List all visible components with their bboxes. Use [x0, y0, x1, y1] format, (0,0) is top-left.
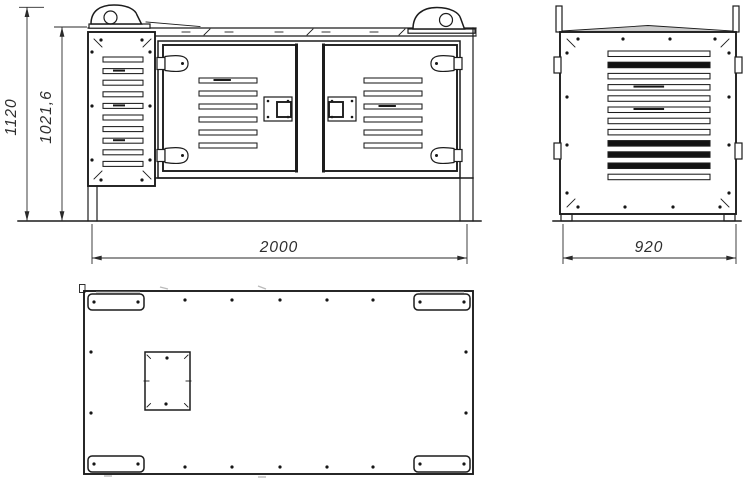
bolt-hole	[140, 38, 143, 41]
louver-slat	[199, 143, 257, 148]
bolt-hole	[230, 298, 233, 301]
bolt-hole	[89, 350, 92, 353]
louver-shadow	[634, 86, 665, 88]
bolt-hole	[576, 37, 579, 40]
bolt-hole	[727, 95, 730, 98]
louver-slat	[103, 115, 143, 120]
door-latch	[264, 97, 292, 121]
bolt-hole	[464, 350, 467, 353]
louver-shadow	[113, 139, 125, 141]
front-view: 1120 1021,6 2000	[3, 5, 481, 264]
bolt-hole	[325, 465, 328, 468]
louver-slat	[364, 91, 422, 96]
bolt-hole	[462, 300, 465, 303]
bolt-hole	[727, 51, 730, 54]
hinge	[157, 56, 188, 72]
bolt-hole	[565, 51, 568, 54]
cable-cutout	[144, 352, 191, 410]
edge-ticks	[104, 286, 266, 477]
dim-label-depth: 920	[635, 239, 664, 256]
bolt-hole	[278, 298, 281, 301]
bolt-hole	[418, 300, 421, 303]
bolt-hole	[92, 462, 95, 465]
bolt-hole	[165, 356, 168, 359]
hinge	[157, 148, 188, 164]
mounting-plate	[88, 294, 144, 310]
bolt-hole	[565, 143, 568, 146]
bolt-hole	[164, 402, 167, 405]
bolt-hole	[371, 298, 374, 301]
door-left-louvers	[199, 78, 257, 148]
door-latch	[328, 97, 356, 121]
bolt-hole	[727, 191, 730, 194]
bolt-hole	[148, 50, 151, 53]
roof-profile	[556, 6, 739, 33]
bolt-hole	[148, 104, 151, 107]
dim-label-length: 2000	[259, 239, 298, 256]
bolt-hole	[576, 205, 579, 208]
dimension-enclosure-height: 1021,6	[38, 27, 87, 221]
bolt-hole	[90, 50, 93, 53]
lifting-lug-left	[89, 5, 150, 28]
bolt-hole	[713, 37, 716, 40]
bolt-hole	[136, 300, 139, 303]
enclosure-body	[155, 28, 473, 221]
bolt-hole	[99, 38, 102, 41]
side-base	[553, 214, 741, 221]
roof-end-cap	[733, 6, 739, 32]
bolt-hole	[140, 178, 143, 181]
bottom-bolts	[89, 298, 467, 468]
louver-slat	[103, 127, 143, 132]
bottom-view	[80, 285, 474, 478]
bolt-hole	[371, 465, 374, 468]
bolt-hole	[278, 465, 281, 468]
dimension-depth: 920	[563, 224, 736, 264]
louver-slat	[103, 161, 143, 166]
louver-shadow	[379, 105, 396, 107]
bolt-hole	[92, 300, 95, 303]
louver-slat	[364, 78, 422, 83]
roof-end-cap	[556, 6, 562, 32]
base-outline	[84, 291, 473, 474]
louver-slat	[608, 141, 710, 147]
bolt-hole	[464, 411, 467, 414]
drawing-sheet: 1120 1021,6 2000	[0, 0, 744, 484]
lifting-lug-right	[408, 8, 475, 34]
side-view: 920	[553, 6, 742, 264]
base-legs	[18, 186, 481, 221]
bolt-hole	[565, 95, 568, 98]
bolt-hole	[668, 37, 671, 40]
louver-slat	[608, 51, 710, 57]
louver-slat	[103, 80, 143, 85]
louver-shadow	[113, 104, 125, 106]
louver-slat	[608, 73, 710, 79]
louver-slat	[199, 117, 257, 122]
louver-slat	[199, 91, 257, 96]
roof-ticks	[182, 29, 425, 35]
bolt-hole	[183, 465, 186, 468]
louver-slat	[608, 174, 710, 180]
bolt-hole	[418, 462, 421, 465]
louver-slat	[103, 92, 143, 97]
louver-slat	[608, 118, 710, 124]
louver-slat	[103, 57, 143, 62]
bolt-hole	[727, 143, 730, 146]
door-right-louvers	[364, 78, 422, 148]
bolt-hole	[462, 462, 465, 465]
louver-slat	[364, 117, 422, 122]
bolt-hole	[621, 37, 624, 40]
louver-slat	[608, 163, 710, 169]
louver-shadow	[214, 79, 231, 81]
bolt-hole	[136, 462, 139, 465]
bolt-hole	[671, 205, 674, 208]
louver-slat	[364, 130, 422, 135]
mounting-plate	[88, 456, 144, 472]
bolt-hole	[565, 191, 568, 194]
mounting-plate	[414, 294, 470, 310]
louver-slat	[364, 143, 422, 148]
bolt-hole	[90, 104, 93, 107]
louver-slat	[199, 130, 257, 135]
bolt-hole	[718, 205, 721, 208]
bolt-hole	[183, 298, 186, 301]
technical-drawing: 1120 1021,6 2000	[0, 0, 744, 484]
louver-slat	[103, 150, 143, 155]
bolt-hole	[148, 158, 151, 161]
louver-slat	[608, 129, 710, 135]
dim-label-overall-height: 1120	[3, 98, 20, 135]
louver-slat	[608, 152, 710, 158]
louver-slat	[199, 104, 257, 109]
dim-label-enclosure-height: 1021,6	[38, 90, 55, 143]
louver-slat	[608, 62, 710, 67]
bolt-hole	[89, 411, 92, 414]
louver-shadow	[634, 108, 665, 110]
bolt-hole	[325, 298, 328, 301]
louver-shadow	[113, 70, 125, 72]
bolt-hole	[99, 178, 102, 181]
louver-slat	[608, 96, 710, 102]
bolt-hole	[623, 205, 626, 208]
mounting-plate	[414, 456, 470, 472]
bolt-hole	[90, 158, 93, 161]
intake-louver-panel	[88, 32, 155, 186]
side-louvers	[608, 51, 710, 180]
bolt-hole	[230, 465, 233, 468]
hinge	[431, 56, 462, 72]
hinge	[431, 148, 462, 164]
dimension-length: 2000	[92, 224, 467, 264]
